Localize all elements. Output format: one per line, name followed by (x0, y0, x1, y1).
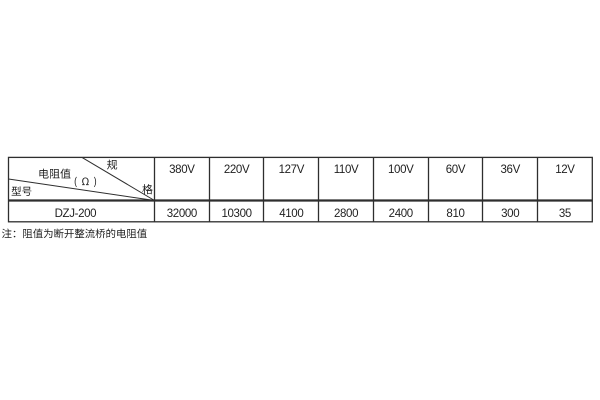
svg-text:2800: 2800 (334, 208, 358, 220)
svg-text:300: 300 (501, 208, 519, 220)
svg-text:2400: 2400 (389, 208, 413, 220)
svg-text:110V: 110V (334, 164, 359, 176)
svg-text:12V: 12V (555, 164, 575, 176)
svg-text:10300: 10300 (221, 208, 251, 220)
svg-text:810: 810 (446, 208, 464, 220)
svg-text:100V: 100V (388, 164, 414, 176)
svg-text:36V: 36V (500, 164, 520, 176)
svg-text:60V: 60V (446, 164, 466, 176)
svg-text:4100: 4100 (279, 208, 303, 220)
svg-text:380V: 380V (169, 164, 195, 176)
svg-text:127V: 127V (279, 164, 305, 176)
svg-text:DZJ-200: DZJ-200 (55, 208, 97, 220)
svg-text:32000: 32000 (167, 208, 197, 220)
svg-text:220V: 220V (224, 164, 250, 176)
svg-text:35: 35 (559, 208, 571, 220)
